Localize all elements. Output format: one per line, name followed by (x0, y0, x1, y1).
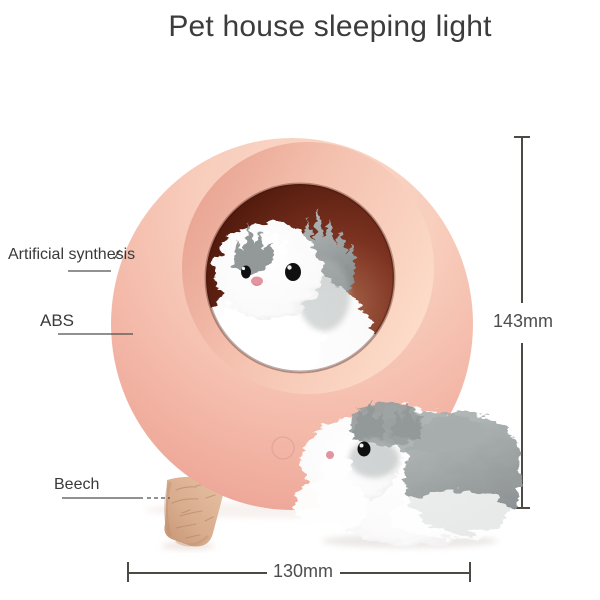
label-abs: ABS (40, 311, 74, 331)
hamster-nose (326, 451, 334, 459)
label-beech: Beech (54, 476, 99, 494)
cat-nose (251, 277, 263, 286)
hamster-muzzle (321, 454, 351, 480)
cat-right-eye-highlight (287, 265, 291, 269)
hamster-rear-white-fringe (390, 492, 514, 540)
dimension-width-label: 130mm (273, 561, 333, 582)
product-illustration (0, 0, 600, 600)
cat-left-eye-highlight (242, 267, 245, 270)
dimension-height-label: 143mm (493, 311, 553, 332)
label-artificial-synthesis: Artificial synthesis (8, 246, 135, 264)
hamster-front-fluff (294, 478, 368, 532)
hamster-cheek-gray (349, 440, 399, 478)
product-page: Pet house sleeping light Artificial synt… (0, 0, 600, 600)
hamster-eye-highlight (360, 444, 364, 448)
cat-right-eye (285, 263, 301, 281)
hamster-eye (358, 442, 371, 457)
page-title: Pet house sleeping light (168, 10, 491, 44)
